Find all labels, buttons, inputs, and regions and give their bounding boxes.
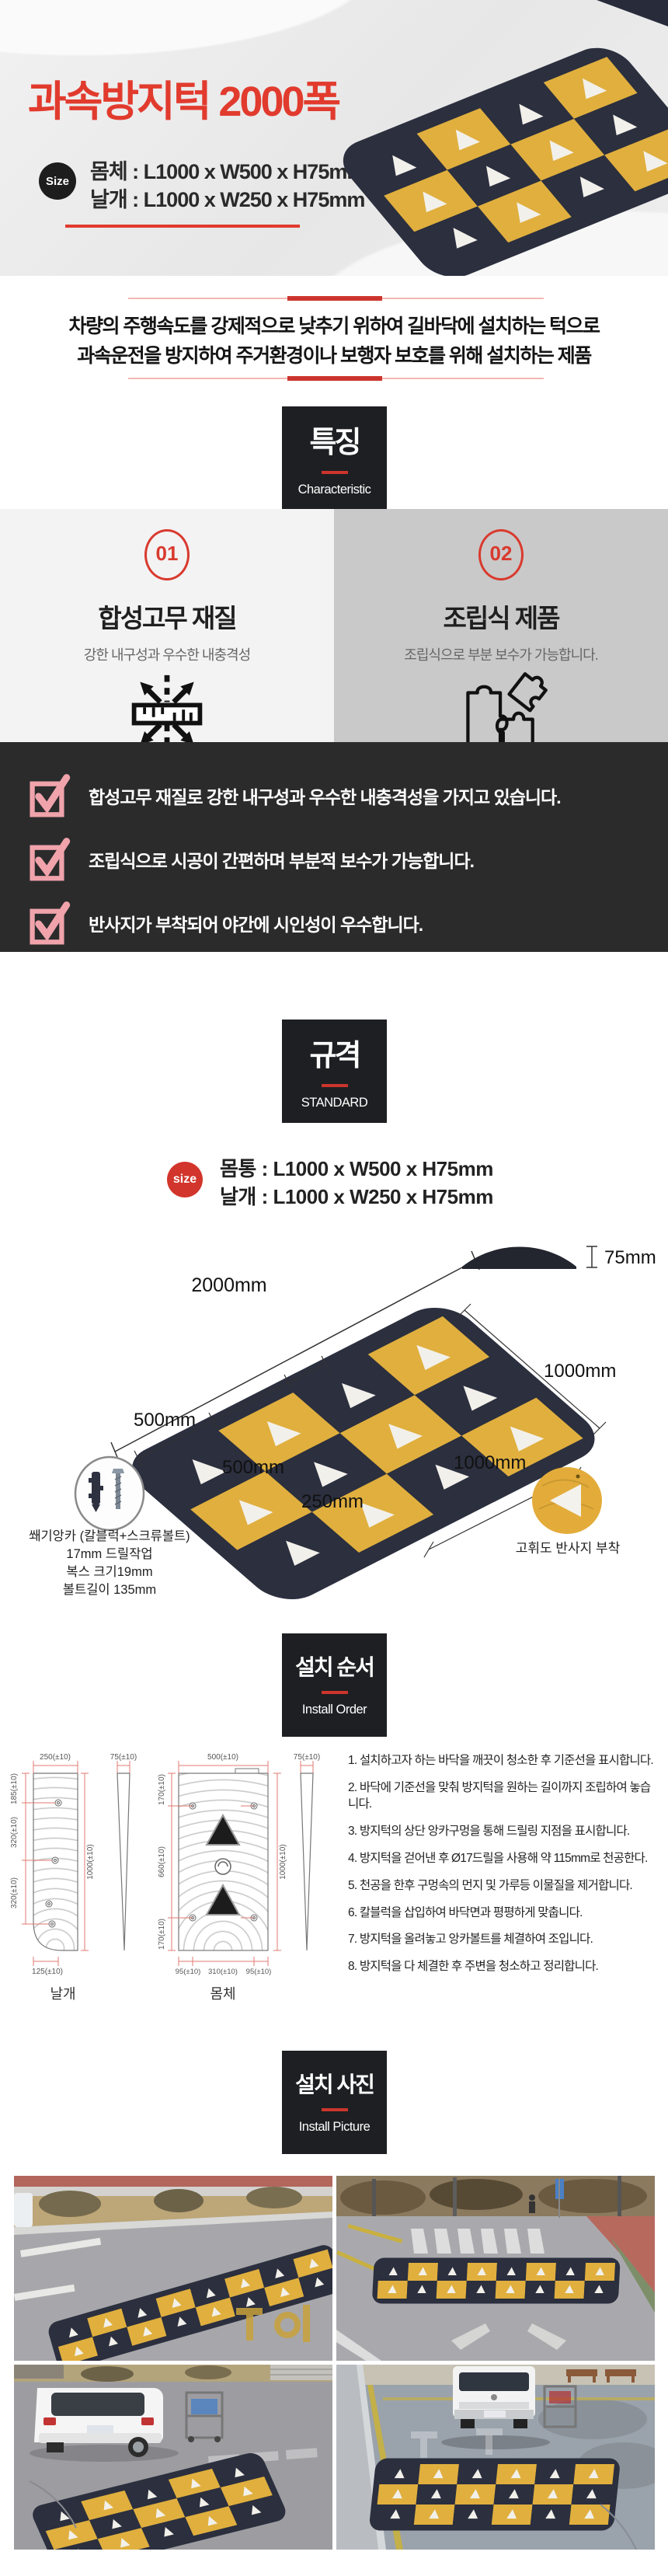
install-photo-3	[14, 2365, 332, 2550]
install-step: 4. 방지턱을 걷어낸 후 Ø17드릴을 사용해 약 115mm로 천공한다.	[348, 1851, 659, 1867]
install-step: 5. 천공을 한후 구멍속의 먼지 및 가루등 이물질을 제거합니다.	[348, 1878, 659, 1895]
section-dash	[322, 1691, 348, 1694]
install-step: 6. 칼블럭을 삽입하여 바닥면과 평평하게 맞춥니다.	[348, 1905, 659, 1922]
section-title-kr: 설치 사진	[282, 2068, 387, 2099]
size-badge-red: size	[167, 1162, 203, 1197]
dim-2000-label: 2000mm	[191, 1274, 266, 1296]
wing-dim-left1: 185(±10)	[10, 1773, 19, 1804]
standard-size-lines: 몸통 : L1000 x W500 x H75mm 날개 : L1000 x W…	[220, 1155, 493, 1211]
section-header-standard: 규격 STANDARD	[282, 1020, 387, 1123]
checkbox-icon	[30, 899, 71, 947]
install-step: 2. 바닥에 기준선을 맞춰 방지턱을 원하는 길이까지 조립하여 놓습니다.	[348, 1780, 659, 1813]
drawing-body: 500(±10) 75(±10) 170(±10) 660(±10) 170(±…	[158, 1753, 320, 2002]
body-dim-top: 500(±10)	[207, 1753, 238, 1762]
page-title: 과속방지턱 2000폭	[28, 67, 339, 128]
body-dim-thickness: 75(±10)	[294, 1753, 320, 1762]
wing-size-line: 날개 : L1000 x W250 x H75mm	[220, 1183, 493, 1211]
technical-drawings: 250(±10) 75(±10) 185(±10) 320(±10) 320(±…	[4, 1750, 338, 2022]
install-step: 8. 방지턱을 다 체결한 후 주변을 청소하고 정리합니다.	[348, 1959, 659, 1975]
intro-line-2: 과속운전을 방지하여 주거환경이나 보행자 보호를 위해 설치하는 제품	[0, 341, 668, 371]
feature-description: 조립식으로 부분 보수가 가능합니다.	[334, 644, 668, 664]
anchor-caption-2: 17mm 드릴작업	[66, 1546, 152, 1561]
body-label: 몸체	[210, 1986, 235, 2002]
checklist-item: 조립식으로 시공이 간편하며 부분적 보수가 가능합니다.	[30, 835, 474, 884]
checklist-item: 반사지가 부착되어 야간에 시인성이 우수합니다.	[30, 899, 423, 947]
section-title-kr: 설치 순서	[282, 1651, 387, 1682]
dim-500-label-1: 500mm	[134, 1410, 196, 1431]
red-underline	[65, 225, 300, 228]
wing-dim-top: 250(±10)	[40, 1753, 71, 1762]
feature-number-badge: 02	[478, 529, 524, 580]
benefits-checklist: 합성고무 재질로 강한 내구성과 우수한 내충격성을 가지고 있습니다. 조립식…	[0, 742, 668, 952]
intro-paragraph: 차량의 주행속도를 강제적으로 낮추기 위하여 길바닥에 설치하는 턱으로 과속…	[0, 312, 668, 371]
section-title-en: Install Order	[282, 1703, 387, 1717]
checklist-text: 조립식으로 시공이 간편하며 부분적 보수가 가능합니다.	[89, 846, 474, 873]
hero-section: 과속방지턱 2000폭 Size 몸체 : L1000 x W500 x H75…	[0, 0, 668, 276]
bump-profile-shape	[462, 1247, 576, 1270]
install-photo-4	[336, 2365, 655, 2550]
install-photo-1	[14, 2176, 332, 2361]
anchor-bolt-illustration	[75, 1457, 144, 1530]
feature-card-2: 02 조립식 제품 조립식으로 부분 보수가 가능합니다.	[334, 509, 668, 742]
section-header-install-order: 설치 순서 Install Order	[282, 1633, 387, 1737]
wing-dim-left2: 320(±10)	[10, 1817, 19, 1848]
checklist-text: 반사지가 부착되어 야간에 시인성이 우수합니다.	[89, 910, 423, 936]
section-dash	[322, 1084, 348, 1087]
drawing-wing: 250(±10) 75(±10) 185(±10) 320(±10) 320(±…	[10, 1753, 137, 2002]
reflector-caption: 고휘도 반사지 부착	[516, 1541, 621, 1556]
body-dim-left3: 170(±10)	[158, 1919, 166, 1950]
feature-card-1: 01 합성고무 재질 강한 내구성과 우수한 내충격성	[0, 509, 334, 742]
body-dim-right: 1000(±10)	[279, 1844, 287, 1880]
intro-line-1: 차량의 주행속도를 강제적으로 낮추기 위하여 길바닥에 설치하는 턱으로	[0, 312, 668, 341]
install-steps-list: 1. 설치하고자 하는 바닥을 깨끗이 청소한 후 기준선을 표시합니다. 2.…	[348, 1753, 659, 1986]
wing-label: 날개	[50, 1986, 75, 2002]
diagram-bump-image	[116, 1297, 611, 1609]
body-dim-left2: 660(±10)	[158, 1846, 166, 1877]
section-header-install-picture: 설치 사진 Install Picture	[282, 2051, 387, 2154]
dim-1000-label-2: 1000mm	[454, 1452, 526, 1473]
dim-75-label: 75mm	[604, 1247, 656, 1268]
section-title-kr: 특징	[282, 418, 387, 461]
anchor-caption-3: 복스 크기19mm	[66, 1564, 152, 1579]
install-step: 3. 방지턱의 상단 앙카구멍을 통해 드릴링 지점을 표시합니다.	[348, 1824, 659, 1840]
features-section: 01 합성고무 재질 강한 내구성과 우수한 내충격성	[0, 509, 668, 742]
product-detail-page: 과속방지턱 2000폭 Size 몸체 : L1000 x W500 x H75…	[0, 0, 668, 2576]
anchor-caption-1: 쐐기앙카 (칼블럭+스크류볼트)	[29, 1529, 190, 1543]
divider-accent-top	[287, 296, 382, 301]
wing-dim-left3: 320(±10)	[10, 1877, 19, 1908]
section-dash	[322, 471, 348, 474]
dimension-diagram: 2000mm 75mm 1000mm 1000mm	[0, 1236, 668, 1624]
wing-dim-bottom: 125(±10)	[32, 1968, 63, 1976]
product-hero-image	[311, 19, 668, 276]
dim-250-label: 250mm	[301, 1491, 364, 1512]
feature-title: 합성고무 재질	[0, 598, 334, 635]
checklist-item: 합성고무 재질로 강한 내구성과 우수한 내충격성을 가지고 있습니다.	[30, 772, 561, 820]
section-header-characteristic: 특징 Characteristic	[282, 406, 387, 510]
body-dim-bottom3: 95(±10)	[246, 1968, 272, 1976]
section-title-kr: 규격	[282, 1031, 387, 1074]
divider-accent-bottom	[287, 376, 382, 381]
checkbox-icon	[30, 772, 71, 820]
section-title-en: STANDARD	[282, 1096, 387, 1110]
checklist-text: 합성고무 재질로 강한 내구성과 우수한 내충격성을 가지고 있습니다.	[89, 783, 561, 809]
feature-title: 조립식 제품	[334, 598, 668, 635]
size-badge: Size	[39, 162, 76, 200]
dim-500-label-2: 500mm	[222, 1457, 284, 1478]
dim-1000-label-1: 1000mm	[544, 1361, 616, 1382]
feature-number-badge: 01	[144, 529, 190, 580]
section-title-en: Characteristic	[282, 483, 387, 497]
reflector-illustration	[532, 1467, 602, 1534]
wing-dim-right: 1000(±10)	[86, 1844, 95, 1880]
install-step: 1. 설치하고자 하는 바닥을 깨끗이 청소한 후 기준선을 표시합니다.	[348, 1753, 659, 1769]
body-dim-left1: 170(±10)	[158, 1774, 166, 1805]
section-dash	[322, 2108, 348, 2111]
anchor-caption-4: 볼트길이 135mm	[63, 1582, 156, 1597]
body-dim-bottom2: 310(±10)	[208, 1968, 238, 1976]
body-dim-bottom1: 95(±10)	[176, 1968, 201, 1976]
feature-description: 강한 내구성과 우수한 내충격성	[0, 644, 334, 664]
standard-size-row: size 몸통 : L1000 x W500 x H75mm 날개 : L100…	[167, 1155, 493, 1211]
install-step: 7. 방지턱을 올려놓고 앙카볼트를 체결하여 조입니다.	[348, 1932, 659, 1948]
body-size-line: 몸통 : L1000 x W500 x H75mm	[220, 1155, 493, 1183]
install-photo-2	[336, 2176, 655, 2361]
wing-dim-thickness: 75(±10)	[110, 1753, 137, 1762]
dim-75-tick	[586, 1246, 597, 1267]
checkbox-icon	[30, 835, 71, 884]
section-title-en: Install Picture	[282, 2120, 387, 2135]
